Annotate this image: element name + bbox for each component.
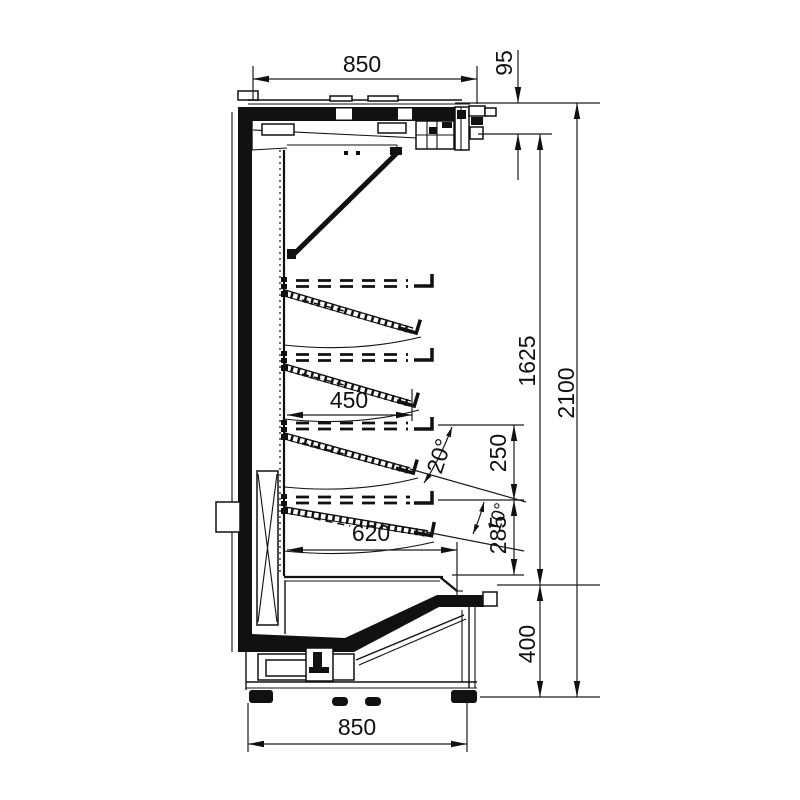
dim-1625-label: 1625 [514, 335, 540, 386]
dim-bottom-width-label: 850 [338, 714, 376, 740]
dim-620-label: 620 [352, 520, 390, 546]
dim-450-label: 450 [330, 387, 368, 413]
fan-unit [416, 121, 454, 149]
cross-braced-column [257, 471, 278, 625]
dim-2100-label: 2100 [553, 367, 579, 418]
dim-250-label: 250 [485, 434, 511, 472]
dim-95-label: 95 [491, 50, 517, 76]
dim-top-width-label: 850 [343, 51, 381, 77]
dim-400-label: 400 [514, 625, 540, 663]
cabinet-section-drawing: 850 95 1625 2100 400 250 285 450 [0, 0, 800, 800]
